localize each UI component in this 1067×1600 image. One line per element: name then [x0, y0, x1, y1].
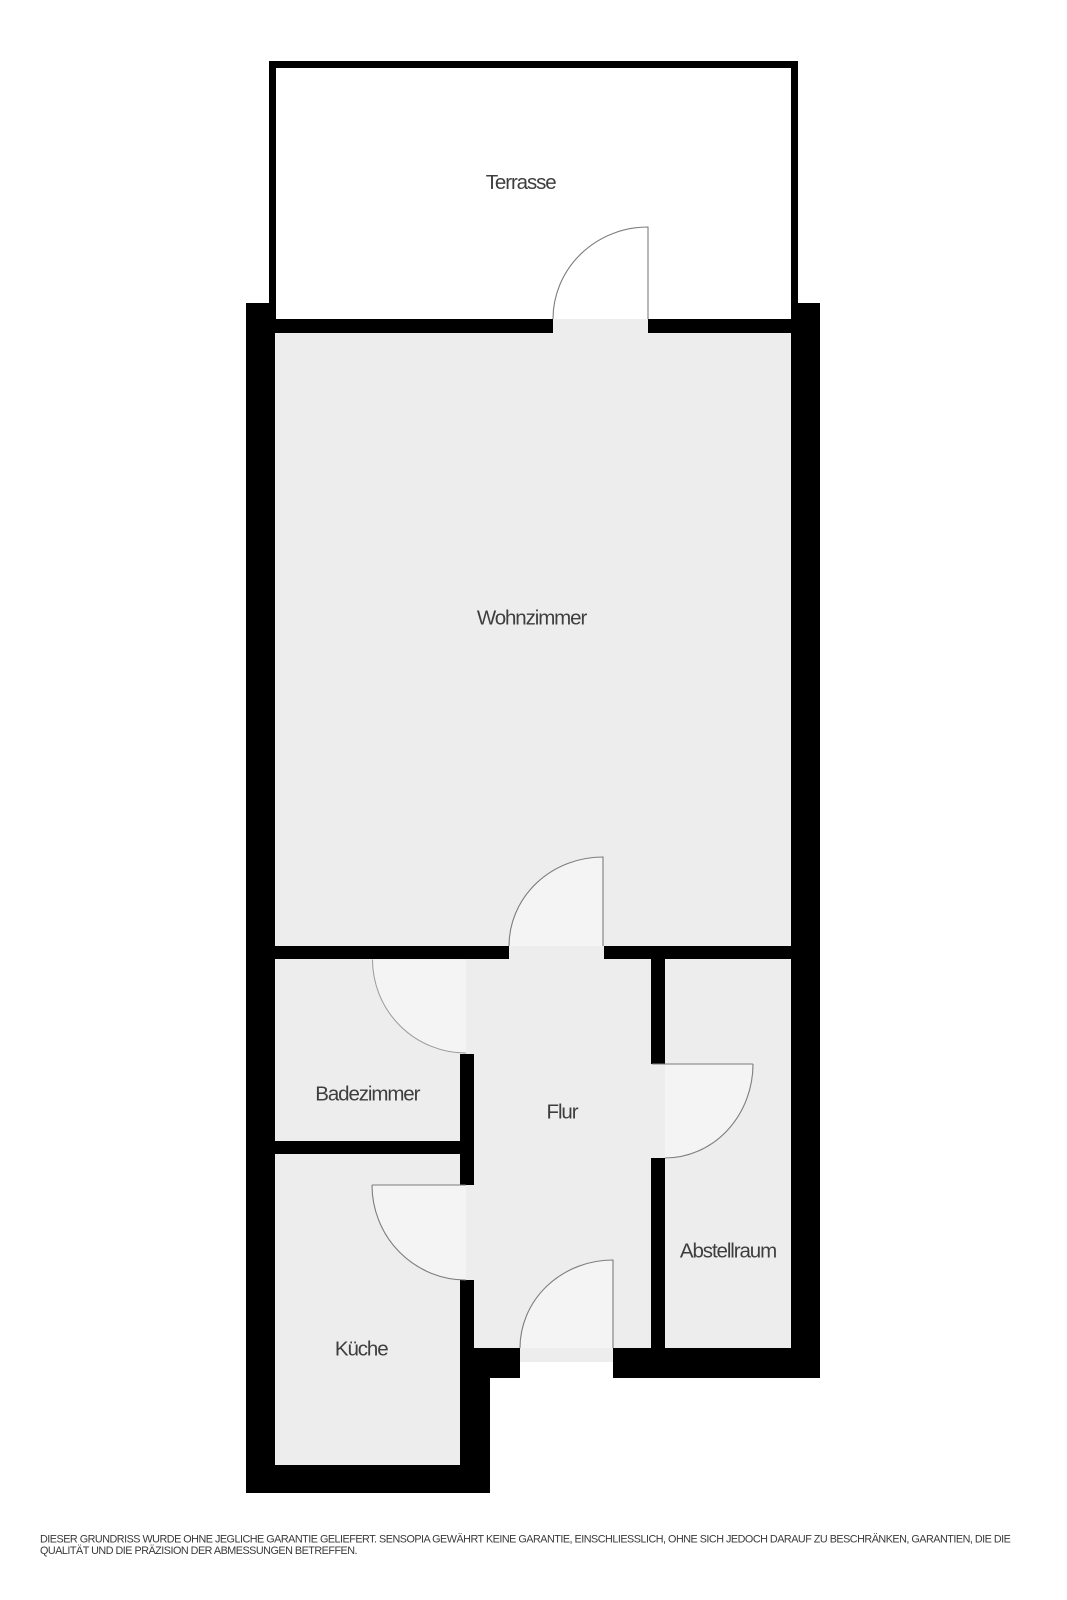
svg-text:DIESER GRUNDRISS WURDE OHNE JE: DIESER GRUNDRISS WURDE OHNE JEGLICHE GAR…: [40, 1534, 1011, 1546]
svg-text:QUALITÄT UND DIE PRÄZISION DER: QUALITÄT UND DIE PRÄZISION DER ABMESSUNG…: [40, 1545, 358, 1557]
svg-text:Flur: Flur: [547, 1101, 579, 1124]
svg-text:Küche: Küche: [335, 1338, 388, 1361]
svg-text:Badezimmer: Badezimmer: [315, 1083, 420, 1106]
svg-text:Abstellraum: Abstellraum: [680, 1240, 776, 1263]
svg-text:Terrasse: Terrasse: [486, 171, 557, 194]
svg-text:Wohnzimmer: Wohnzimmer: [477, 607, 588, 630]
